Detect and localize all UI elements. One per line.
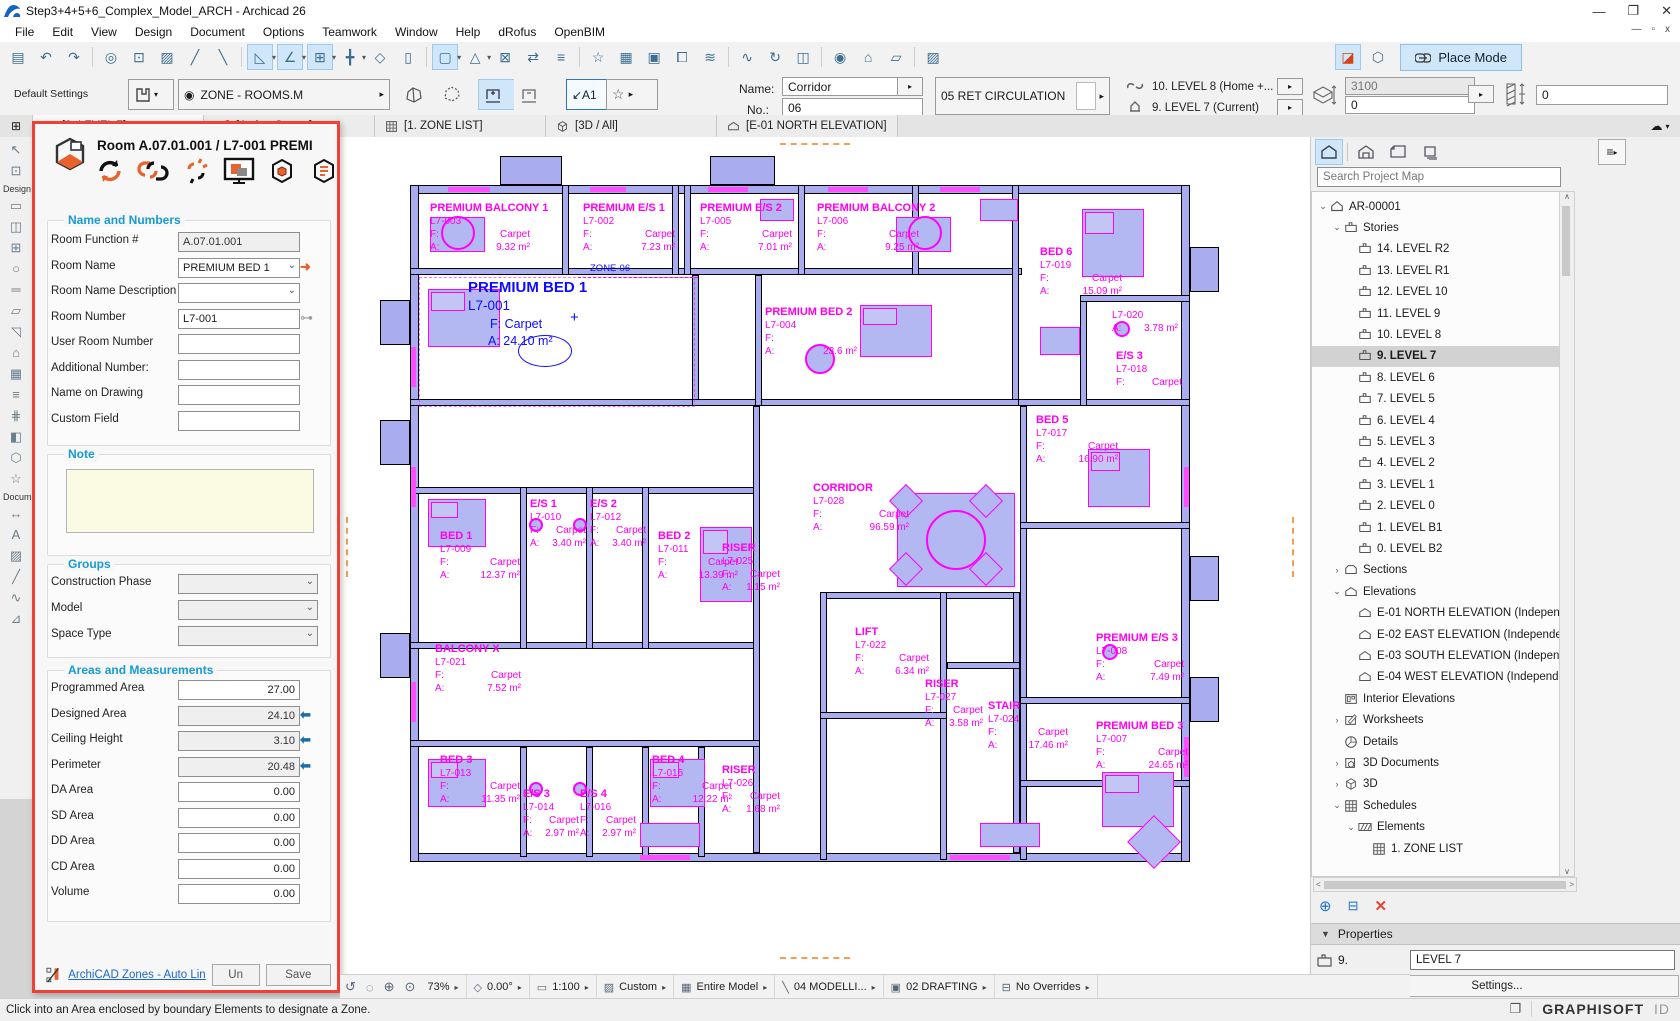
wall[interactable]: [755, 275, 762, 406]
toolbox-tool-icon[interactable]: ☆: [5, 468, 27, 489]
toolbox-tool-icon[interactable]: ▭: [5, 195, 27, 216]
dropdown-arrow-icon[interactable]: ▾: [332, 53, 336, 62]
expander-icon[interactable]: ›: [1332, 758, 1342, 768]
menu-edit[interactable]: Edit: [43, 23, 82, 41]
drofus-room-panel: Room A.07.01.001 / L7-001 PREMI Name and…: [32, 121, 340, 993]
zone-stamp-bed-1[interactable]: BED 1L7-009F:CarpetA:12.37 m²: [440, 529, 520, 582]
expander-icon[interactable]: ⌄: [1332, 222, 1342, 233]
quickoption-04-modelli-[interactable]: ╲04 MODELLI...▸: [775, 975, 883, 999]
tree-item-elements[interactable]: ⌄Elements: [1312, 817, 1561, 838]
toolbar-icon[interactable]: ⧠: [669, 44, 695, 70]
note-section: Note: [47, 454, 331, 556]
toolbox-tool-icon[interactable]: ╱: [5, 566, 27, 587]
window-segment[interactable]: [411, 467, 416, 507]
toolbar-icon[interactable]: ╱: [182, 44, 208, 70]
blue-arrow-icon[interactable]: ⬅: [300, 732, 324, 748]
group-field[interactable]: [178, 600, 318, 620]
dropdown-arrow-icon[interactable]: ▾: [362, 53, 366, 62]
tree-item-e-04-west-elevation-independent[interactable]: E-04 WEST ELEVATION (Independent): [1312, 667, 1561, 688]
toolbar-icon[interactable]: ∠: [277, 44, 303, 70]
window-segment[interactable]: [640, 855, 690, 860]
toolbar-icon[interactable]: ≋: [697, 44, 723, 70]
view-map-icon[interactable]: [1352, 139, 1380, 165]
room-panel-title: Room A.07.01.001 / L7-001 PREMI: [97, 138, 335, 153]
zone-stamp-premium-e-s-3[interactable]: PREMIUM E/S 3L7-008F:CarpetA:7.49 m²: [1096, 631, 1184, 684]
story-name-input[interactable]: LEVEL 7: [1410, 950, 1675, 970]
tree-item-3-level-1[interactable]: 3. LEVEL 1: [1312, 474, 1561, 495]
area-field[interactable]: 27.00: [178, 680, 300, 700]
area-field[interactable]: 0.00: [178, 859, 300, 879]
home-story-expand[interactable]: ▸: [1277, 78, 1303, 95]
tree-vertical-scrollbar[interactable]: ∧ ∨: [1559, 191, 1575, 877]
tree-item-stories[interactable]: ⌄Stories: [1312, 217, 1561, 238]
tab--1-zone-list-[interactable]: [1. ZONE LIST]: [375, 115, 546, 137]
wall[interactable]: [520, 487, 527, 649]
expander-icon[interactable]: ⌄: [1318, 201, 1328, 212]
furniture-rect[interactable]: [1040, 327, 1080, 355]
quickoption-no-overrides[interactable]: ⊟No Overrides▸: [995, 975, 1098, 999]
room-field[interactable]: [178, 283, 300, 303]
zone-stamp-balcony-x[interactable]: BALCONY XL7-021F:CarpetA:7.52 m²: [435, 642, 521, 695]
delete-icon[interactable]: ✕: [1374, 897, 1387, 915]
toolbar-icon[interactable]: ⊞: [307, 44, 333, 70]
toolbar-icon[interactable]: ╲: [210, 44, 236, 70]
wall[interactable]: [692, 399, 1019, 406]
wall[interactable]: [820, 592, 827, 860]
tree-item-3d-documents[interactable]: ›3D Documents: [1312, 752, 1561, 773]
toolbar-icon[interactable]: ▯: [395, 44, 421, 70]
archicad-zones-autolink-link[interactable]: ArchiCAD Zones - Auto Link: [68, 969, 205, 981]
tab--3d-/-all-[interactable]: [3D / All]: [546, 115, 717, 137]
tree-item-4-level-2[interactable]: 4. LEVEL 2: [1312, 453, 1561, 474]
document-window-controls[interactable]: —▫x: [1631, 24, 1670, 35]
quickoption-1-100[interactable]: ▭1:100▸: [530, 975, 597, 999]
window-segment[interactable]: [950, 855, 1010, 860]
autolink-icon: [45, 966, 62, 984]
tab-label: [3D / All]: [575, 120, 618, 132]
layout-book-icon[interactable]: [1384, 139, 1412, 165]
zone-stamp-riser[interactable]: RISERL7-025F:CarpetA:1.15 m²: [722, 541, 780, 594]
toolbar-icon[interactable]: ▦: [613, 44, 639, 70]
floor-plan-canvas[interactable]: PREMIUM BALCONY 1L7-003F:CarpetA:9.32 m²…: [340, 137, 1311, 974]
expander-icon[interactable]: ⌄: [1332, 586, 1342, 597]
zone-top-height-value: 3100: [1351, 79, 1378, 93]
toolbox-tool-icon[interactable]: ⋕: [5, 405, 27, 426]
menu-window[interactable]: Window: [386, 23, 447, 41]
zone-stamp-e-s-4[interactable]: E/S 4L7-016F:CarpetA:2.97 m²: [580, 787, 636, 840]
zone-stamp-bed-3[interactable]: BED 3L7-013F:CarpetA:11.35 m²: [440, 753, 520, 806]
hexagon-3d-icon[interactable]: [267, 156, 297, 186]
toolbar-icon[interactable]: ▢: [432, 44, 458, 70]
section-title-areas: Areas and Measurements: [64, 663, 217, 677]
quickoption-02-drafting[interactable]: ▣02 DRAFTING▸: [884, 975, 995, 999]
tree-item-e-01-north-elevation-independent[interactable]: E-01 NORTH ELEVATION (Independent): [1312, 603, 1561, 624]
wall[interactable]: [947, 662, 1020, 669]
tree-item-1-level-b1[interactable]: 1. LEVEL B1: [1312, 517, 1561, 538]
elevation-icon: [727, 120, 740, 133]
tree-item-details[interactable]: Details: [1312, 731, 1561, 752]
quickoption-custom[interactable]: ▨Custom▸: [597, 975, 674, 999]
key-icon[interactable]: ⊶: [300, 310, 324, 326]
toolbox-tool-icon[interactable]: ▦: [5, 363, 27, 384]
zone-stamp-premium-bed-3[interactable]: PREMIUM BED 3L7-007F:CarpetA:24.65 m²: [1096, 719, 1188, 772]
blue-arrow-icon[interactable]: ⬅: [300, 758, 324, 774]
add-view-icon[interactable]: ⊕: [1319, 897, 1332, 915]
toolbar-icon[interactable]: ↻: [762, 44, 788, 70]
area-field[interactable]: 0.00: [178, 884, 300, 904]
tree-item-9-level-7[interactable]: 9. LEVEL 7: [1312, 346, 1561, 367]
balcony-bump: [380, 300, 410, 345]
area-value: 0.00: [274, 888, 295, 900]
toolbox-tool-icon[interactable]: ↖: [5, 139, 27, 160]
height-expand-button[interactable]: ▸: [1468, 85, 1494, 103]
furniture-rect[interactable]: [980, 823, 1040, 847]
room-field[interactable]: [178, 411, 300, 431]
wall[interactable]: [820, 592, 1020, 599]
room-label: Custom Field: [51, 413, 119, 425]
story-icon: [1358, 456, 1372, 470]
reference-line-icon[interactable]: [436, 79, 482, 110]
tree-item-e-03-south-elevation-independent[interactable]: E-03 SOUTH ELEVATION (Independent): [1312, 645, 1561, 666]
bed-furniture[interactable]: [1102, 772, 1174, 827]
toolbox-tool-icon[interactable]: ⊞: [5, 237, 27, 258]
toolbox-tool-icon[interactable]: ↔: [5, 503, 27, 524]
tree-item-5-level-3[interactable]: 5. LEVEL 3: [1312, 431, 1561, 452]
toolbox-tool-icon[interactable]: ⊿: [5, 608, 27, 629]
wall[interactable]: [684, 185, 691, 275]
zone-stamp-e-s-2[interactable]: E/S 2L7-012F:CarpetA:3.40 m²: [590, 497, 646, 550]
link-icon[interactable]: [137, 157, 169, 185]
bed-furniture[interactable]: [860, 305, 932, 357]
elevation-icon: [1358, 606, 1372, 620]
expander-icon[interactable]: ⌄: [1332, 800, 1342, 811]
toolbox-tool-icon[interactable]: ▨: [5, 545, 27, 566]
zone-name-expand-button[interactable]: ▸: [897, 77, 923, 96]
toolbox-tool-icon[interactable]: ○: [5, 258, 27, 279]
area-label: DA Area: [51, 784, 93, 796]
nav-tool-icon[interactable]: ↺: [340, 975, 361, 999]
toolbar-icon[interactable]: ⊠: [492, 44, 518, 70]
room-value: L7-001: [183, 313, 217, 325]
wall[interactable]: [1020, 406, 1027, 860]
toolbar-icon[interactable]: ▨: [154, 44, 180, 70]
tree-item-0-level-b2[interactable]: 0. LEVEL B2: [1312, 538, 1561, 559]
zone-stamp-e-s-3[interactable]: E/S 3L7-018F:Carpet: [1116, 349, 1182, 389]
offset-field[interactable]: 0: [1536, 85, 1668, 105]
zone-stamp-premium-balcony-1[interactable]: PREMIUM BALCONY 1L7-003F:CarpetA:9.32 m²: [430, 201, 530, 254]
toolbar-icon[interactable]: ↶: [33, 44, 59, 70]
detail-icon: [1344, 735, 1358, 749]
schedule-icon: [1372, 842, 1386, 856]
info-bar: Default Settings ▾ ◉ ZONE - ROOMS.M ▸ ↙A…: [0, 72, 1680, 116]
area-value: 27.00: [267, 684, 295, 696]
undo-button[interactable]: Un: [212, 964, 260, 986]
room-field[interactable]: [178, 360, 300, 380]
tree-item-11-level-9[interactable]: 11. LEVEL 9: [1312, 303, 1561, 324]
elevation-marker: [780, 957, 850, 959]
tree-item-8-level-6[interactable]: 8. LEVEL 6: [1312, 367, 1561, 388]
tab--e-01-north-elevation-[interactable]: [E-01 NORTH ELEVATION]: [717, 115, 898, 137]
toolbar-icon[interactable]: ◺: [247, 44, 273, 70]
tree-item-2-level-0[interactable]: 2. LEVEL 0: [1312, 496, 1561, 517]
blue-arrow-icon[interactable]: ⬅: [300, 707, 324, 723]
room-field[interactable]: PREMIUM BED 1: [178, 258, 300, 278]
window-segment[interactable]: [448, 187, 490, 192]
toolbox-tool-icon[interactable]: A: [5, 524, 27, 545]
toolbox-tool-icon[interactable]: ∿: [5, 587, 27, 608]
toolbox-tool-icon[interactable]: ⊡: [5, 160, 27, 181]
tree-item-label: 1. LEVEL B1: [1377, 522, 1442, 534]
drofus-toggle-icon[interactable]: ◪: [1335, 44, 1361, 70]
tree-item-ar-00001[interactable]: ⌄AR-00001: [1312, 196, 1561, 217]
window-segment[interactable]: [708, 187, 748, 192]
publisher-icon[interactable]: [1416, 139, 1444, 165]
menu-options[interactable]: Options: [254, 23, 313, 41]
tree-item-label: 3D: [1363, 778, 1378, 790]
worksheet-icon: [1344, 713, 1358, 727]
wall[interactable]: [1012, 399, 1190, 406]
window-title: Step3+4+5+6_Complex_Model_ARCH - Archica…: [26, 4, 306, 18]
tree-item-3d[interactable]: ›3D: [1312, 774, 1561, 795]
zone-stamp-bed-5[interactable]: BED 5L7-017F:CarpetA:16.90 m²: [1036, 413, 1118, 466]
tree-item-label: 11. LEVEL 9: [1377, 308, 1440, 320]
place-mode-button[interactable]: Place Mode: [1400, 44, 1522, 71]
toolbar-icon[interactable]: ◎: [98, 44, 124, 70]
group-label: Space Type: [51, 628, 112, 640]
story-icon: [1358, 478, 1372, 492]
close-button[interactable]: ✕: [1661, 3, 1672, 19]
group-field[interactable]: [178, 626, 318, 646]
wall[interactable]: [1080, 295, 1087, 406]
tool-favorites-dropdown[interactable]: ◉ ZONE - ROOMS.M ▸: [178, 79, 390, 110]
zone-stamp-e-s-3[interactable]: E/S 3L7-014F:CarpetA:2.97 m²: [523, 787, 579, 840]
tree-item-sections[interactable]: ›Sections: [1312, 560, 1561, 581]
group-label: Construction Phase: [51, 576, 151, 588]
wall[interactable]: [1020, 522, 1190, 529]
current-story-expand[interactable]: ▸: [1277, 99, 1303, 116]
expander-icon[interactable]: ›: [1332, 779, 1342, 789]
tree-item-6-level-4[interactable]: 6. LEVEL 4: [1312, 410, 1561, 431]
expander-icon[interactable]: ›: [1332, 715, 1342, 725]
tree-item-worksheets[interactable]: ›Worksheets: [1312, 710, 1561, 731]
zone-stamp-premium-e-s-2[interactable]: PREMIUM E/S 2L7-005F:CarpetA:7.01 m²: [700, 201, 792, 254]
area-field[interactable]: 0.00: [178, 782, 300, 802]
project-map-icon[interactable]: [1315, 139, 1343, 165]
minimize-button[interactable]: —: [1592, 4, 1605, 19]
tree-item-14-level-r2[interactable]: 14. LEVEL R2: [1312, 239, 1561, 260]
window-segment[interactable]: [1184, 467, 1189, 507]
zone-name-input[interactable]: Corridor: [782, 77, 906, 96]
note-textarea[interactable]: [66, 469, 314, 533]
window-segment[interactable]: [411, 347, 416, 387]
tree-item-12-level-10[interactable]: 12. LEVEL 10: [1312, 282, 1561, 303]
zone-stamp-e-s-1[interactable]: E/S 1L7-010F:CarpetA:3.40 m²: [530, 497, 586, 550]
zone-category-dropdown[interactable]: 05 RET CIRCULATION ▸: [935, 77, 1110, 115]
window-segment[interactable]: [940, 187, 980, 192]
tree-item-interior-elevations[interactable]: Interior Elevations: [1312, 688, 1561, 709]
quickoption-73-[interactable]: 73%▸: [420, 975, 466, 999]
wall[interactable]: [410, 487, 760, 494]
toolbar-icon[interactable]: △: [462, 44, 488, 70]
nav-tool-icon[interactable]: ⊙: [400, 975, 421, 999]
menu-openbim[interactable]: OpenBIM: [545, 23, 614, 41]
tree-item-10-level-8[interactable]: 10. LEVEL 8: [1312, 324, 1561, 345]
story-icon: [1317, 954, 1332, 967]
toolbar-icon[interactable]: ↷: [61, 44, 87, 70]
zone-stamp-lift[interactable]: LIFTL7-022F:CarpetA:6.34 m²: [855, 625, 929, 678]
toolbar-icon[interactable]: ◉: [827, 44, 853, 70]
tree-item-label: E-02 EAST ELEVATION (Independent): [1377, 629, 1561, 641]
toolbar-icon[interactable]: ▨: [920, 44, 946, 70]
zone-stamp-stair[interactable]: STAIRL7-024F:CarpetA:17.46 m²: [988, 699, 1068, 752]
favorites-star-button[interactable]: ☆▸: [606, 79, 658, 110]
tab-overflow-button[interactable]: ☁▾: [1640, 115, 1680, 137]
hatch-icon: [1358, 820, 1372, 834]
navigator-menu-button[interactable]: ≡▸: [1598, 139, 1626, 165]
toolbar-icon[interactable]: ∿: [734, 44, 760, 70]
furniture-rect[interactable]: [640, 823, 700, 847]
nav-tool-icon[interactable]: ⊕: [379, 975, 400, 999]
zone-stamp-premium-balcony-2[interactable]: PREMIUM BALCONY 2L7-006F:CarpetA:9.25 m²: [817, 201, 919, 254]
unlink-icon[interactable]: [181, 157, 211, 185]
zone-stamp-premium-e-s-1[interactable]: PREMIUM E/S 1L7-002F:CarpetA:7.23 m²: [583, 201, 675, 254]
toolbar-icon[interactable]: ⌂: [855, 44, 881, 70]
menu-help[interactable]: Help: [447, 23, 490, 41]
toolbar-icon[interactable]: ◇: [367, 44, 393, 70]
tree-item-schedules[interactable]: ⌄Schedules: [1312, 795, 1561, 816]
window-segment[interactable]: [411, 682, 416, 722]
toolbox-tool-icon[interactable]: ▱: [5, 300, 27, 321]
menu-design[interactable]: Design: [126, 23, 181, 41]
zone-stamp-riser[interactable]: RISERL7-026F:CarpetA:1.68 m²: [722, 763, 780, 816]
toolbar-icon[interactable]: ▱: [883, 44, 909, 70]
zone-stamp-premium-bed-2[interactable]: PREMIUM BED 2L7-004F:A:23.6 m²: [765, 305, 857, 358]
wall[interactable]: [562, 185, 569, 275]
openbim-hex-icon[interactable]: ⬡: [1365, 44, 1391, 70]
window-segment[interactable]: [828, 187, 868, 192]
zone-method-2-icon[interactable]: [514, 79, 558, 110]
sync-icon[interactable]: [95, 156, 125, 186]
quickoption-entire-model[interactable]: ▦Entire Model▸: [674, 975, 775, 999]
toolbox-tool-icon[interactable]: ═: [5, 279, 27, 300]
view-settings-icon[interactable]: ⊟: [1348, 898, 1359, 914]
wall[interactable]: [410, 268, 1022, 275]
room-field[interactable]: L7-001: [178, 309, 300, 329]
toolbox-tool-icon[interactable]: ◹: [5, 321, 27, 342]
window-segment[interactable]: [590, 187, 626, 192]
monitor-highlight-icon[interactable]: [223, 157, 255, 185]
dropdown-arrow-icon[interactable]: ▾: [302, 53, 306, 62]
dropdown-arrow-icon[interactable]: ▾: [487, 53, 491, 62]
room-field[interactable]: [178, 334, 300, 354]
toolbar-icon[interactable]: ▤: [5, 44, 31, 70]
toolbox-tool-icon[interactable]: ⌂: [5, 342, 27, 363]
zone-stamp-riser[interactable]: RISERL7-027F:CarpetA:3.58 m²: [925, 677, 983, 730]
toolbox-tool-icon[interactable]: ◧: [5, 426, 27, 447]
room-field[interactable]: [178, 385, 300, 405]
tree-item-elevations[interactable]: ⌄Elevations: [1312, 581, 1561, 602]
tree-item-7-level-5[interactable]: 7. LEVEL 5: [1312, 389, 1561, 410]
zone-bottom-offset-field[interactable]: 0: [1345, 96, 1475, 114]
zone-category-label: 05 RET CIRCULATION: [941, 89, 1065, 103]
expander-icon[interactable]: ›: [1332, 565, 1342, 575]
story-icon: [1358, 371, 1372, 385]
tree-item-1-zone-list[interactable]: 1. ZONE LIST: [1312, 838, 1561, 859]
tree-item-label: 7. LEVEL 5: [1377, 393, 1435, 405]
toolbar-icon[interactable]: ☆: [585, 44, 611, 70]
toolbar-icon[interactable]: ≡: [548, 44, 574, 70]
zone-stamp-corridor[interactable]: CORRIDORL7-028F:CarpetA:96.59 m²: [813, 481, 909, 534]
dropdown-arrow-icon[interactable]: ▾: [272, 53, 276, 62]
zone-default-settings-button[interactable]: ▾: [128, 79, 174, 110]
room-value: A.07.01.001: [183, 236, 242, 248]
wall[interactable]: [798, 185, 805, 275]
tree-item-label: Schedules: [1363, 800, 1417, 812]
menu-drofus[interactable]: dRofus: [489, 23, 545, 41]
story-icon: [1358, 521, 1372, 535]
toolbar-icon[interactable]: ⊡: [126, 44, 152, 70]
wall[interactable]: [410, 853, 1190, 862]
zone-stamp-l7-020[interactable]: L7-020A:3.78 m²: [1112, 309, 1178, 335]
group-field[interactable]: [178, 574, 318, 594]
toolbar-icon[interactable]: ◫: [790, 44, 816, 70]
section-title-groups: Groups: [64, 557, 115, 571]
toolbar-icon[interactable]: ▣: [641, 44, 667, 70]
toolbox: ↖⊡Design▭◫⊞○═▱◹⌂▦≡⋕◧⬡☆Docum↔A▨╱∿⊿: [0, 137, 33, 799]
toolbox-tool-icon[interactable]: ⬡: [5, 447, 27, 468]
toolbox-tool-icon[interactable]: ◫: [5, 216, 27, 237]
toolbox-tool-icon[interactable]: ≡: [5, 384, 27, 405]
tree-item-label: E-01 NORTH ELEVATION (Independent): [1377, 607, 1561, 619]
search-project-map-input[interactable]: Search Project Map: [1317, 167, 1561, 187]
menu-file[interactable]: File: [6, 23, 43, 41]
hexagon-doc-icon[interactable]: [309, 156, 339, 186]
furniture-rect[interactable]: [980, 199, 1018, 221]
tree-horizontal-scrollbar[interactable]: <>: [1313, 877, 1577, 892]
zone-stamp-bed-4[interactable]: BED 4L7-015F:CarpetA:12.22 m²: [652, 753, 732, 806]
menu-view[interactable]: View: [82, 23, 126, 41]
schedule-icon: [385, 120, 398, 133]
zone-stamp-bed-6[interactable]: BED 6L7-019F:CarpetA:15.09 m²: [1040, 245, 1122, 298]
maximize-button[interactable]: ❐: [1627, 3, 1639, 19]
quick-options-icon[interactable]: ⊞: [0, 115, 33, 137]
eye-icon: ◉: [184, 88, 194, 102]
balcony-bump: [500, 156, 562, 185]
nav-tool-icon[interactable]: ◌: [361, 975, 379, 999]
menu-teamwork[interactable]: Teamwork: [313, 23, 386, 41]
tree-item-e-02-east-elevation-independent[interactable]: E-02 EAST ELEVATION (Independent): [1312, 624, 1561, 645]
toolbar-icon[interactable]: ╋: [337, 44, 363, 70]
chevron-right-icon: ▸: [1099, 91, 1104, 102]
menu-document[interactable]: Document: [181, 23, 254, 41]
area-field[interactable]: 0.00: [178, 808, 300, 828]
properties-header[interactable]: ▼ Properties: [1311, 923, 1680, 945]
toolbar-icon[interactable]: ⇄: [520, 44, 546, 70]
save-button[interactable]: Save: [266, 964, 331, 986]
windows-icon: ❐: [1510, 1001, 1522, 1017]
tree-item-13-level-r1[interactable]: 13. LEVEL R1: [1312, 260, 1561, 281]
wall[interactable]: [410, 740, 760, 747]
quickoption-0-00-[interactable]: ◇0.00°▸: [467, 975, 530, 999]
orange-arrow-icon[interactable]: ➜: [300, 259, 324, 275]
dropdown-arrow-icon[interactable]: ▾: [457, 53, 461, 62]
expander-icon[interactable]: ⌄: [1346, 822, 1356, 833]
graphisoft-id-badge[interactable]: ❐ GRAPHISOFT ID: [1510, 998, 1670, 1020]
area-field[interactable]: 0.00: [178, 833, 300, 853]
area-label: SD Area: [51, 810, 94, 822]
story-icon: [1358, 264, 1372, 278]
wall[interactable]: [410, 185, 419, 862]
